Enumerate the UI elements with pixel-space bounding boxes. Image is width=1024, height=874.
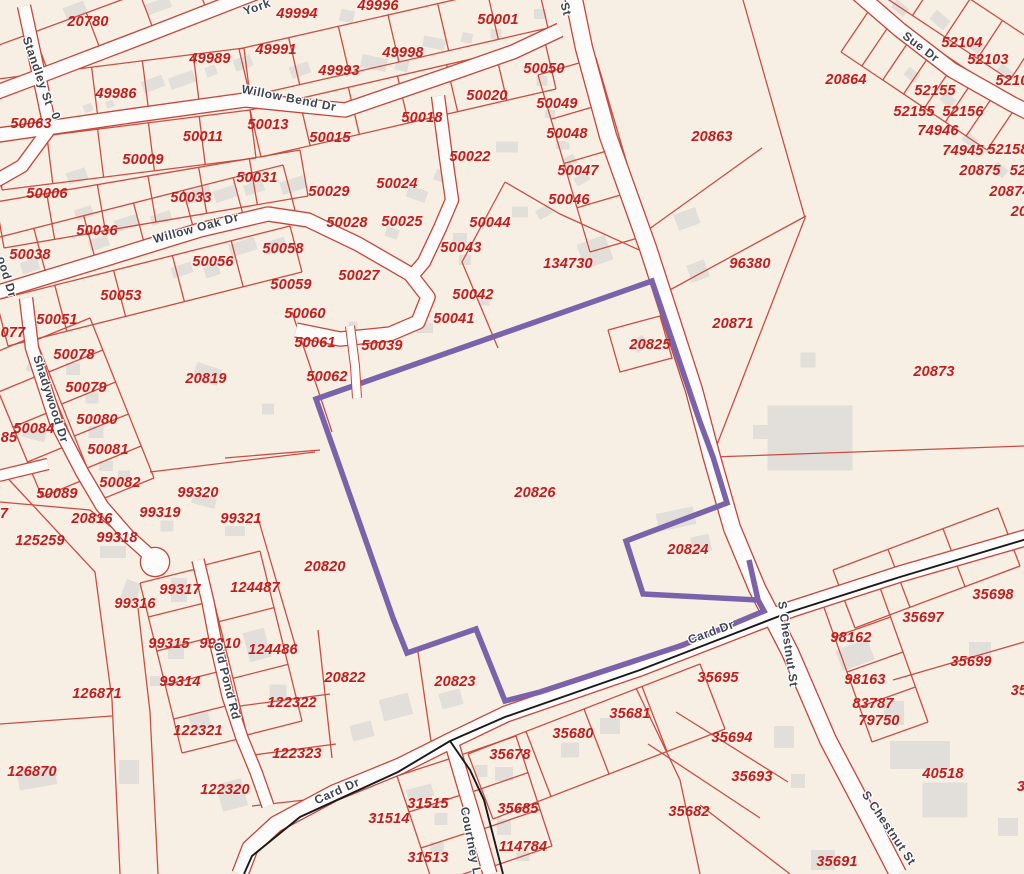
- parcel-label[interactable]: 52155: [893, 104, 934, 120]
- building: [753, 425, 771, 439]
- parcel-label[interactable]: 79750: [858, 713, 899, 729]
- building: [774, 726, 794, 748]
- parcel-label[interactable]: 52158: [987, 142, 1024, 158]
- parcel-label[interactable]: 49989: [189, 51, 230, 67]
- parcel-label[interactable]: 49986: [95, 86, 136, 102]
- parcel-label[interactable]: 20873: [913, 364, 954, 380]
- parcel-label[interactable]: 35695: [697, 670, 738, 686]
- road-card-dr: [240, 536, 1024, 874]
- building: [114, 214, 141, 233]
- parcel-label[interactable]: 20871: [712, 316, 753, 332]
- parcel-label[interactable]: 20820: [304, 559, 345, 575]
- parcel-label[interactable]: 50051: [36, 312, 77, 328]
- parcel-label[interactable]: 5210: [995, 73, 1024, 89]
- parcel-label[interactable]: 50058: [262, 241, 303, 257]
- parcel-label[interactable]: 50024: [376, 176, 417, 192]
- parcel-map[interactable]: 2078049996499945000149989499914999849993…: [0, 0, 1024, 874]
- building: [379, 692, 414, 721]
- parcel-label[interactable]: 50027: [338, 268, 379, 284]
- parcel-label[interactable]: 50031: [236, 170, 277, 186]
- parcel-label[interactable]: 99321: [220, 511, 261, 527]
- parcel-label[interactable]: 99316: [114, 596, 155, 612]
- parcel-label[interactable]: 50084: [13, 421, 54, 437]
- parcel-label[interactable]: 35693: [731, 769, 772, 785]
- building: [82, 103, 93, 114]
- parcel-label[interactable]: 50029: [308, 184, 349, 200]
- building: [225, 526, 245, 536]
- parcel-label[interactable]: 35697: [902, 610, 943, 626]
- parcel-label[interactable]: 50080: [76, 412, 117, 428]
- parcel-label[interactable]: 35699: [950, 654, 991, 670]
- building: [100, 546, 126, 558]
- parcel-label[interactable]: 50044: [469, 215, 510, 231]
- parcel-label[interactable]: 50046: [548, 192, 589, 208]
- parcel-label[interactable]: 125259: [15, 533, 65, 549]
- parcel-label[interactable]: 99319: [139, 505, 180, 521]
- parcel-label[interactable]: 35685: [497, 801, 538, 817]
- parcel-label[interactable]: 20824: [667, 542, 708, 558]
- parcel-label[interactable]: 52: [1010, 163, 1024, 179]
- parcel-label[interactable]: 50015: [309, 130, 350, 146]
- building: [998, 818, 1018, 836]
- parcel-label[interactable]: 50039: [361, 338, 402, 354]
- parcel-label[interactable]: 20874: [989, 184, 1024, 200]
- parcel-label[interactable]: 20875: [959, 163, 1000, 179]
- building: [161, 521, 174, 532]
- parcel-label[interactable]: 50006: [26, 186, 67, 202]
- parcel-label[interactable]: 49998: [382, 45, 423, 61]
- building: [119, 760, 139, 784]
- parcel-label[interactable]: 50036: [76, 223, 117, 239]
- parcel-label[interactable]: 99314: [159, 674, 200, 690]
- parcel-label[interactable]: 077: [1, 325, 26, 341]
- parcel-label[interactable]: 35680: [552, 726, 593, 742]
- parcel-label[interactable]: 126871: [72, 686, 122, 702]
- parcel-label[interactable]: 50042: [452, 287, 493, 303]
- parcel-label-selected[interactable]: 20826: [514, 485, 555, 501]
- parcel-label[interactable]: 50082: [99, 475, 140, 491]
- parcel-label[interactable]: 122321: [173, 723, 223, 739]
- parcel-label[interactable]: 50078: [53, 347, 94, 363]
- parcel-label[interactable]: 50043: [440, 240, 481, 256]
- parcel-label[interactable]: 50081: [87, 442, 128, 458]
- parcel-label[interactable]: 40518: [922, 766, 963, 782]
- map-graphics: [0, 0, 1024, 874]
- parcel-label[interactable]: 50020: [466, 88, 507, 104]
- parcel-label[interactable]: 35698: [972, 587, 1013, 603]
- parcel-label[interactable]: 122323: [272, 746, 322, 762]
- parcel-label[interactable]: 50049: [536, 96, 577, 112]
- parcel-label[interactable]: 35694: [711, 730, 752, 746]
- parcel-label[interactable]: 124487: [230, 580, 280, 596]
- parcel-label[interactable]: 50038: [9, 247, 50, 263]
- parcel-label[interactable]: 126870: [7, 764, 57, 780]
- building: [890, 741, 950, 769]
- parcel-label[interactable]: 35681: [609, 706, 650, 722]
- building: [801, 353, 816, 368]
- parcel-label[interactable]: 7: [0, 506, 8, 522]
- parcel-label[interactable]: 52156: [942, 104, 983, 120]
- building: [435, 813, 448, 825]
- roads: [0, 0, 1024, 874]
- parcel-label[interactable]: 74946: [917, 123, 958, 139]
- parcel-label[interactable]: 114784: [499, 839, 548, 855]
- parcel-label[interactable]: 98163: [844, 672, 885, 688]
- parcel-label[interactable]: 50079: [65, 380, 106, 396]
- parcel-label[interactable]: 99315: [148, 636, 189, 652]
- building: [232, 54, 253, 71]
- parcel-label[interactable]: 99310: [199, 636, 240, 652]
- parcel-label[interactable]: 35682: [668, 804, 709, 820]
- parcel-label[interactable]: 20822: [324, 670, 365, 686]
- parcel-label[interactable]: 49994: [276, 6, 317, 22]
- building: [262, 404, 274, 415]
- parcel-label[interactable]: 20780: [67, 14, 108, 30]
- parcel-label[interactable]: 50063: [10, 116, 51, 132]
- parcel-label[interactable]: 20: [1011, 204, 1024, 220]
- parcel-label[interactable]: 99317: [159, 582, 200, 598]
- parcel-label[interactable]: 50047: [557, 163, 598, 179]
- parcel-label[interactable]: 99320: [177, 485, 218, 501]
- parcel-label[interactable]: 52103: [967, 52, 1008, 68]
- parcel-label[interactable]: 50050: [523, 61, 564, 77]
- building: [279, 175, 307, 195]
- parcel-label[interactable]: 50061: [294, 335, 335, 351]
- parcel-label[interactable]: 50028: [326, 215, 367, 231]
- parcel-label[interactable]: 20864: [825, 72, 866, 88]
- parcel-label[interactable]: 122322: [267, 695, 317, 711]
- parcel-label[interactable]: 20819: [185, 371, 226, 387]
- parcel-label[interactable]: 124486: [248, 642, 298, 658]
- building: [929, 10, 951, 31]
- parcel-label[interactable]: 20823: [434, 674, 475, 690]
- parcel-label[interactable]: 50056: [192, 254, 233, 270]
- parcel-label[interactable]: 50025: [381, 214, 422, 230]
- parcel-label[interactable]: 49996: [357, 0, 398, 14]
- building: [168, 70, 197, 90]
- parcel-label[interactable]: 50009: [122, 152, 163, 168]
- parcel-label[interactable]: 122320: [200, 782, 250, 798]
- parcel-label[interactable]: 31514: [368, 811, 409, 827]
- parcel-label[interactable]: 85: [1, 430, 18, 446]
- parcel-label[interactable]: 31515: [407, 796, 448, 812]
- building: [461, 32, 474, 44]
- parcel-label[interactable]: 35691: [816, 854, 857, 870]
- building: [213, 185, 238, 203]
- parcel-label[interactable]: 52155: [914, 83, 955, 99]
- parcel-label[interactable]: 50022: [449, 149, 490, 165]
- parcel-label[interactable]: 20816: [71, 511, 112, 527]
- parcel-label[interactable]: 50011: [183, 129, 223, 145]
- building: [791, 774, 805, 788]
- parcel-label[interactable]: 20863: [691, 129, 732, 145]
- parcel-label[interactable]: 98162: [830, 630, 871, 646]
- building: [496, 142, 518, 153]
- parcel-label[interactable]: 50033: [170, 190, 211, 206]
- building: [349, 720, 374, 741]
- building: [422, 35, 446, 50]
- parcel-label[interactable]: 20825: [629, 337, 670, 353]
- parcel-label[interactable]: 52104: [941, 35, 982, 51]
- parcel-label[interactable]: 50053: [100, 288, 141, 304]
- building: [512, 207, 528, 218]
- parcel-label[interactable]: 35: [1011, 683, 1024, 699]
- parcel-label[interactable]: 3: [1017, 779, 1024, 795]
- building: [149, 210, 172, 226]
- parcel-label[interactable]: 50089: [36, 486, 77, 502]
- parcel-label[interactable]: 50001: [477, 12, 518, 28]
- parcel-label[interactable]: 50013: [247, 117, 288, 133]
- parcel-label[interactable]: 50062: [306, 369, 347, 385]
- parcel-label[interactable]: 50041: [433, 311, 474, 327]
- parcel-label[interactable]: 96380: [729, 256, 770, 272]
- parcel-label[interactable]: 99318: [96, 530, 137, 546]
- building: [144, 0, 172, 16]
- parcel-label[interactable]: 31513: [407, 850, 448, 866]
- building: [438, 688, 463, 709]
- parcel-lines: [0, 0, 1024, 874]
- building: [561, 743, 579, 758]
- parcel-label[interactable]: 50060: [284, 306, 325, 322]
- parcel-label[interactable]: 49993: [318, 63, 359, 79]
- parcel-label[interactable]: 50048: [546, 126, 587, 142]
- building: [673, 207, 700, 231]
- parcel-label[interactable]: 83787: [852, 696, 893, 712]
- building: [768, 406, 853, 471]
- parcel-label[interactable]: 134730: [543, 256, 593, 272]
- parcel-label[interactable]: 35678: [489, 747, 530, 763]
- building: [170, 262, 193, 279]
- building: [339, 9, 355, 24]
- parcel-label[interactable]: 50018: [401, 110, 442, 126]
- parcel-label[interactable]: 74945: [942, 143, 983, 159]
- parcel-label[interactable]: 49991: [255, 42, 296, 58]
- building: [289, 61, 312, 79]
- building: [923, 783, 968, 818]
- parcel-label[interactable]: 50059: [270, 277, 311, 293]
